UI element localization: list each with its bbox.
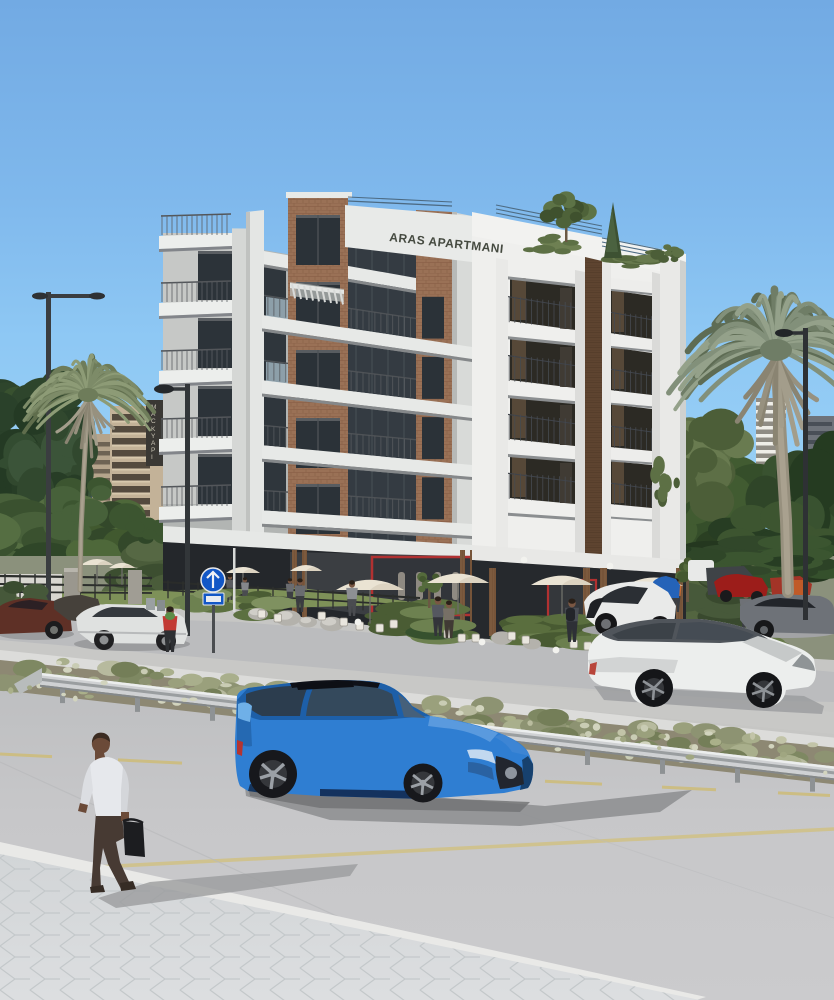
svg-text:C: C (151, 418, 156, 425)
svg-text:Y: Y (151, 433, 156, 440)
svg-text:A: A (151, 440, 156, 447)
svg-text:I: I (151, 454, 153, 461)
svg-text:P: P (151, 447, 155, 454)
svg-text:K: K (151, 426, 156, 433)
